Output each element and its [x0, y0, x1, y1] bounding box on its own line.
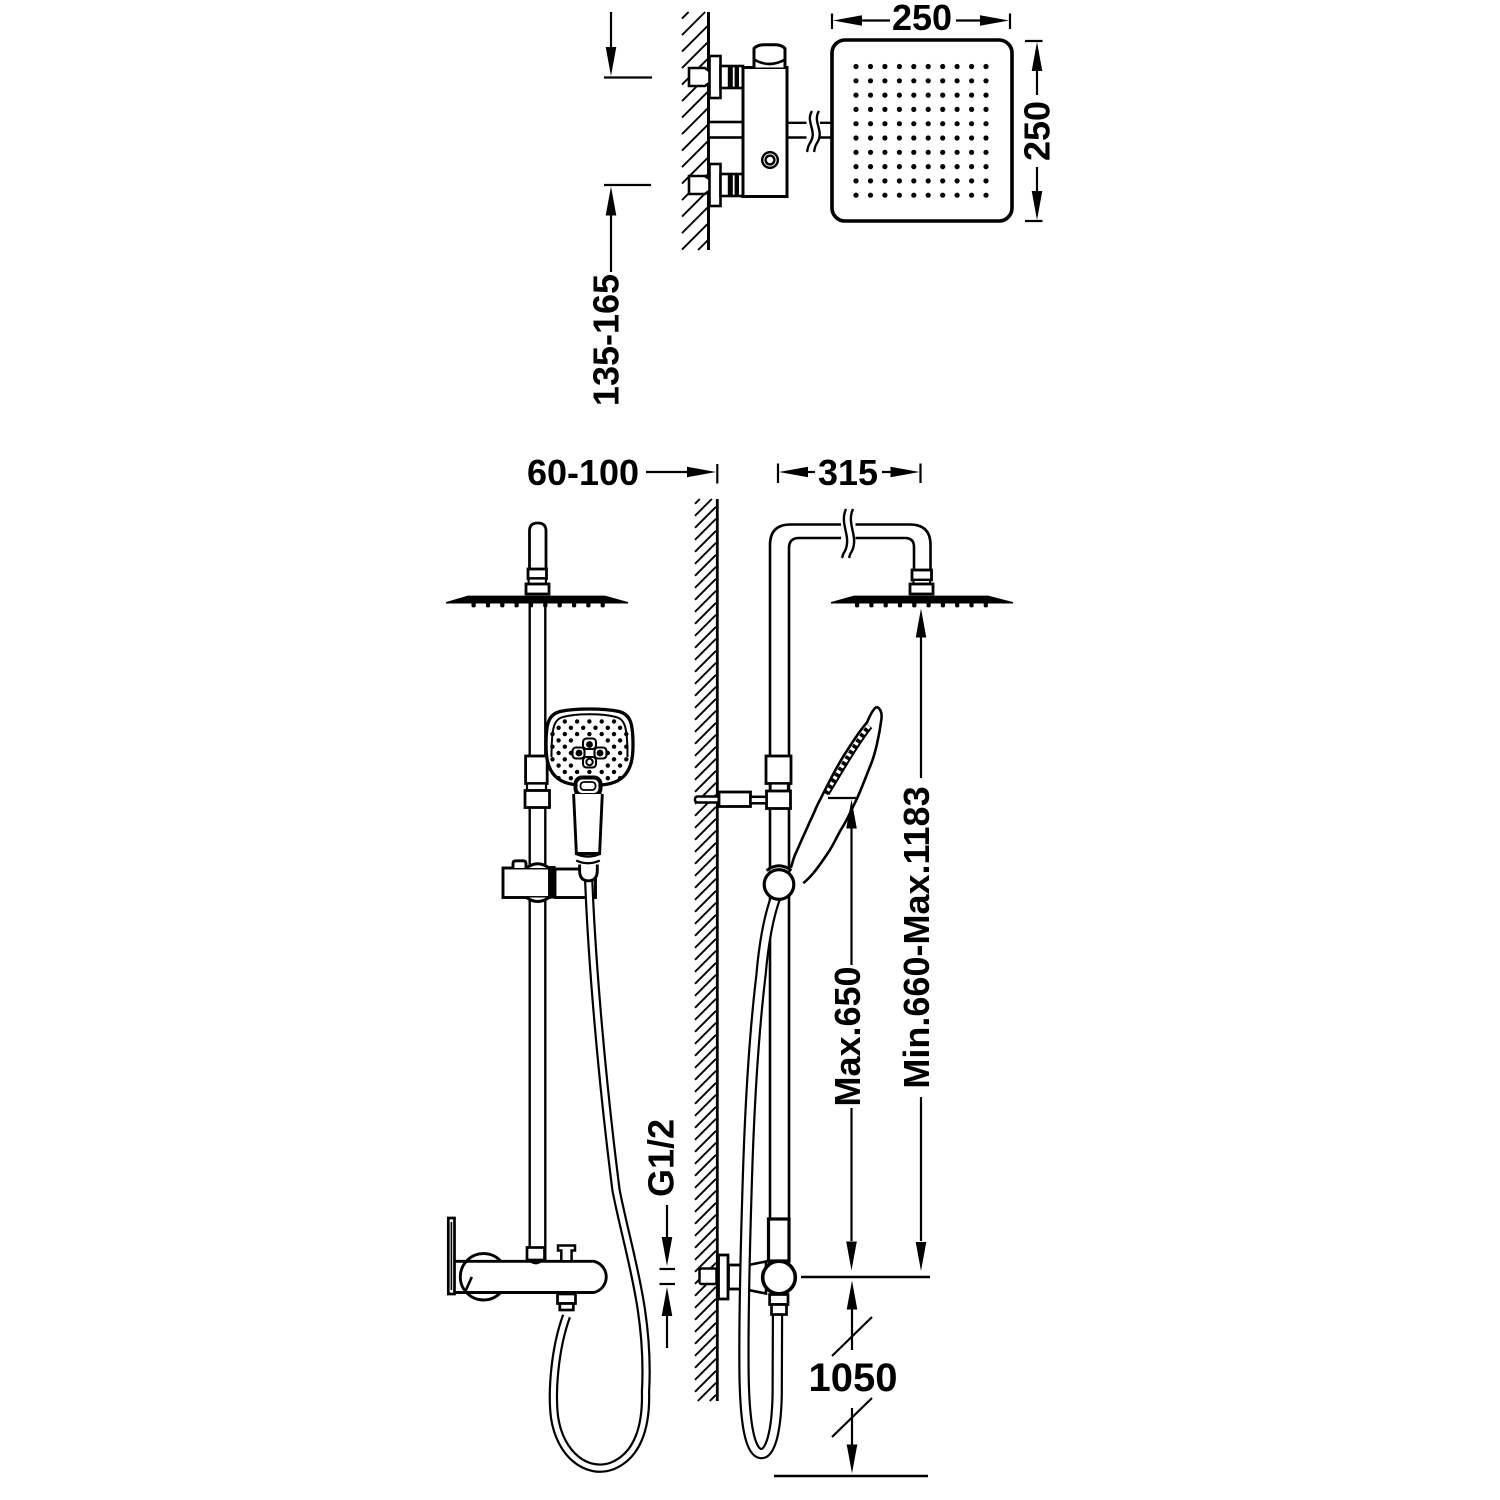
svg-text:Min.660-Max.1183: Min.660-Max.1183: [896, 786, 937, 1088]
svg-text:250: 250: [1017, 101, 1058, 161]
svg-text:G1/2: G1/2: [641, 1119, 682, 1197]
svg-text:315: 315: [818, 452, 878, 493]
svg-text:135-165: 135-165: [586, 274, 627, 406]
svg-text:Max.650: Max.650: [827, 966, 868, 1106]
svg-text:60-100: 60-100: [527, 452, 639, 493]
svg-text:250: 250: [892, 0, 952, 38]
svg-text:1050: 1050: [809, 1356, 898, 1400]
